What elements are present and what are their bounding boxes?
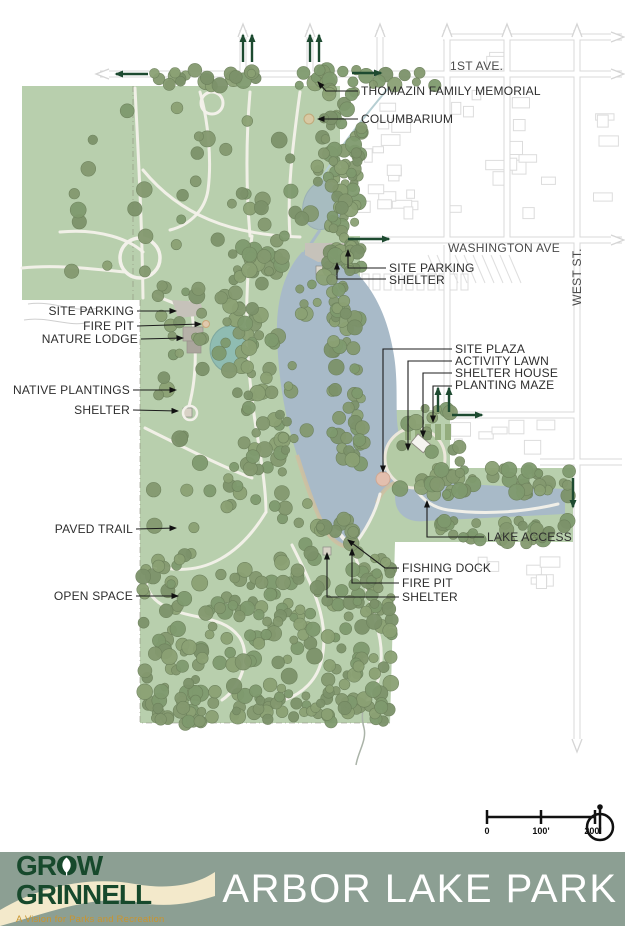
tree (232, 707, 240, 715)
tree (353, 661, 364, 672)
tree (194, 333, 207, 346)
tree (225, 647, 236, 658)
tree (453, 440, 466, 453)
building-footprint (450, 274, 457, 290)
tree (224, 474, 234, 484)
building-footprint (597, 115, 608, 127)
tree (345, 452, 360, 467)
tree (181, 484, 193, 496)
building-footprint (513, 120, 525, 131)
tree (148, 647, 162, 661)
tree (238, 437, 250, 449)
tree (138, 229, 153, 244)
tree (221, 501, 233, 513)
tree (373, 583, 383, 593)
tree (137, 684, 153, 700)
tree (227, 199, 236, 208)
tree (562, 480, 572, 490)
building-footprint (512, 98, 529, 108)
tree (352, 388, 363, 399)
tree (234, 611, 245, 622)
tree (535, 469, 543, 477)
logo-line2: GRINNELL (16, 879, 152, 910)
tree (256, 696, 265, 705)
tree (138, 664, 152, 678)
tree (253, 638, 265, 650)
tree (167, 580, 176, 589)
tree (326, 685, 334, 693)
tree (351, 148, 361, 158)
tree (344, 612, 353, 621)
tree (69, 188, 80, 199)
tree (174, 316, 186, 328)
tree (209, 685, 222, 698)
tree (194, 132, 203, 141)
tree (304, 546, 318, 560)
tree (182, 288, 190, 296)
tree (275, 692, 285, 702)
tree (241, 361, 254, 374)
tree (327, 427, 338, 438)
tree (170, 621, 186, 637)
tree (242, 401, 255, 414)
building-footprint (510, 141, 523, 154)
tree (414, 67, 425, 78)
tree (337, 512, 351, 526)
parking-hatch (500, 255, 512, 283)
parking-hatch (482, 255, 494, 283)
building-footprint (536, 575, 546, 589)
label-fire-pit-west: FIRE PIT (83, 319, 134, 333)
site-plaza-circle (376, 472, 390, 486)
tree (264, 588, 277, 601)
tree (242, 247, 257, 262)
building-footprint (373, 274, 380, 290)
tree (263, 617, 272, 626)
tree (385, 568, 395, 578)
tree (383, 624, 397, 638)
tree (229, 286, 243, 300)
parking-hatch (491, 255, 503, 283)
tree (278, 501, 292, 515)
tree (306, 622, 320, 636)
tree (158, 372, 170, 384)
tree (216, 569, 227, 580)
building-footprint (523, 208, 534, 219)
tree (254, 609, 265, 620)
tree (184, 678, 194, 688)
tree (346, 563, 360, 577)
tree (269, 501, 280, 512)
tree (188, 63, 202, 77)
tree (154, 684, 169, 699)
tree (307, 280, 316, 289)
fire-pit-west-feature (203, 321, 210, 328)
tree (455, 457, 465, 467)
tree (284, 184, 298, 198)
tree (242, 262, 258, 278)
tree (138, 617, 149, 628)
tree (300, 300, 309, 309)
tree (220, 143, 232, 155)
tree (199, 606, 214, 621)
tree (291, 698, 302, 709)
tree (182, 640, 197, 655)
building-footprint (542, 177, 556, 184)
tree (191, 147, 204, 160)
tree (246, 450, 260, 464)
building-footprint (449, 206, 461, 213)
tree (192, 575, 208, 591)
tree (295, 212, 309, 226)
tree (339, 679, 350, 690)
tree (223, 318, 232, 327)
tree (288, 361, 297, 370)
building-footprint (464, 106, 474, 117)
tree (156, 310, 168, 322)
tree (353, 434, 366, 447)
tree (294, 618, 307, 631)
building-footprint (527, 565, 542, 575)
building-footprint (599, 136, 618, 146)
tree (205, 630, 214, 639)
tree (146, 482, 161, 497)
tree (305, 608, 316, 619)
footer-banner: GROW GRINNELL A Vision for Parks and Rec… (0, 852, 625, 926)
tree (310, 581, 324, 595)
label-fishing-dock: FISHING DOCK (402, 561, 491, 575)
tree (382, 602, 396, 616)
tree (88, 135, 98, 145)
tree (208, 697, 219, 708)
tree (353, 597, 362, 606)
tree (332, 598, 345, 611)
tree (196, 652, 208, 664)
tree (200, 71, 214, 85)
tree (366, 614, 382, 630)
tree (212, 78, 228, 94)
tree (206, 710, 219, 723)
tree (521, 463, 537, 479)
tree (70, 202, 86, 218)
tree (365, 682, 381, 698)
building-footprint (381, 135, 400, 146)
tree (212, 346, 226, 360)
park-title: ARBOR LAKE PARK (215, 852, 625, 926)
scale-bar: 0 100' 200' (484, 810, 601, 836)
tree (284, 690, 293, 699)
street-label-first-ave: 1ST AVE. (450, 59, 503, 73)
tree (265, 267, 274, 276)
tree (103, 261, 113, 271)
tree (265, 333, 279, 347)
tree (147, 518, 162, 533)
tree (338, 295, 349, 306)
tree (327, 211, 338, 222)
tree (177, 189, 189, 201)
tree (137, 584, 149, 596)
tree (243, 462, 257, 476)
tree (237, 562, 252, 577)
tree (250, 685, 262, 697)
tree (182, 715, 195, 728)
tree (290, 434, 299, 443)
tree (452, 483, 468, 499)
tree (251, 495, 261, 505)
tree (369, 668, 381, 680)
tree (256, 417, 270, 431)
tree (281, 668, 297, 684)
tree (174, 554, 185, 565)
tree (276, 575, 291, 590)
tree (307, 648, 323, 664)
building-footprint (519, 155, 537, 163)
tree (423, 431, 432, 440)
tree (120, 104, 134, 118)
tree (247, 69, 255, 77)
tree (313, 177, 322, 186)
tree (345, 88, 358, 101)
tree (190, 176, 201, 187)
tree (321, 135, 330, 144)
tree (338, 66, 349, 77)
tree (337, 644, 346, 653)
tree (192, 455, 208, 471)
tree (350, 364, 360, 374)
street-arrow (572, 739, 582, 752)
tree (474, 534, 486, 546)
building-footprint (373, 147, 384, 153)
tree (238, 316, 253, 331)
label-open-space: OPEN SPACE (54, 589, 133, 603)
tree (278, 468, 287, 477)
tree (273, 617, 283, 627)
tree (197, 707, 206, 716)
tree (254, 201, 268, 215)
tree (290, 636, 298, 644)
tree (228, 250, 237, 259)
tree (244, 630, 255, 641)
parking-hatch (509, 255, 521, 283)
tree (136, 569, 151, 584)
tree (455, 468, 464, 477)
tree (177, 215, 186, 224)
tree (329, 157, 338, 166)
tree (168, 332, 177, 341)
building-footprint (404, 207, 413, 219)
tree (392, 481, 408, 497)
tree (271, 132, 287, 148)
tree (177, 591, 192, 606)
tree (448, 530, 458, 540)
tree (369, 653, 378, 662)
tree (321, 709, 333, 721)
columbarium-structure (304, 114, 314, 124)
tree (272, 656, 285, 669)
tree (295, 605, 305, 615)
tree (196, 362, 210, 376)
tree (275, 555, 290, 570)
tree (434, 462, 449, 477)
tree (348, 77, 358, 87)
tree (194, 716, 205, 727)
tree (246, 302, 259, 315)
tree (399, 69, 410, 80)
tree (372, 569, 382, 579)
tree (563, 465, 576, 478)
tree (319, 114, 329, 124)
tree (288, 712, 298, 722)
tree (197, 308, 207, 318)
tree (291, 564, 304, 577)
tree (136, 182, 152, 198)
tree (163, 78, 175, 90)
tree (314, 65, 325, 76)
tree (235, 654, 251, 670)
tree (472, 519, 481, 528)
tree (175, 349, 184, 358)
building-footprint (380, 103, 396, 111)
tree (294, 518, 304, 528)
tree (332, 283, 345, 296)
tree (385, 651, 398, 664)
street-label-washington-ave: WASHINGTON AVE (448, 241, 560, 255)
tree (177, 701, 190, 714)
street-label-west-st: WEST ST. (570, 248, 584, 306)
tree (157, 281, 167, 291)
tree (421, 404, 429, 412)
tree (255, 277, 268, 290)
tree (229, 462, 238, 471)
tree (253, 704, 264, 715)
tree (438, 514, 452, 528)
tree (340, 308, 351, 319)
tree (274, 486, 289, 501)
tree (275, 410, 284, 419)
tree (349, 579, 361, 591)
tree (229, 70, 242, 83)
tree (263, 678, 277, 692)
label-lake-access: LAKE ACCESS (487, 530, 572, 544)
tree (204, 485, 216, 497)
tree (341, 432, 353, 444)
grow-grinnell-logo: GROW GRINNELL A Vision for Parks and Rec… (0, 852, 215, 926)
building-footprint (492, 427, 507, 434)
building-footprint (387, 165, 401, 175)
building-footprint (479, 432, 493, 439)
tree (345, 265, 355, 275)
tree (340, 623, 352, 635)
tree (171, 102, 183, 114)
tree (335, 584, 348, 597)
building-footprint (378, 200, 392, 209)
tree (442, 490, 450, 498)
tree (350, 218, 358, 226)
tree (501, 462, 517, 478)
tree (128, 202, 142, 216)
label-shelter-west: SHELTER (74, 403, 130, 417)
tree (321, 630, 335, 644)
building-footprint (407, 190, 415, 198)
scale-tick-100: 100' (532, 826, 549, 836)
tree (232, 388, 242, 398)
tree (221, 363, 237, 379)
label-nature-lodge: NATURE LODGE (42, 332, 138, 346)
tree (232, 481, 243, 492)
tree (274, 249, 289, 264)
tree (284, 382, 293, 391)
tree (153, 703, 163, 713)
tree (340, 102, 355, 117)
tree (343, 402, 354, 413)
tree (355, 421, 369, 435)
label-native-plantings: NATIVE PLANTINGS (13, 383, 130, 397)
tree (190, 695, 200, 705)
label-fire-pit-south: FIRE PIT (402, 576, 453, 590)
building-footprint (537, 420, 555, 430)
label-paved-trail: PAVED TRAIL (55, 522, 133, 536)
tree (348, 526, 359, 537)
tree (255, 576, 268, 589)
tree (211, 233, 225, 247)
tree (263, 714, 274, 725)
tree (261, 629, 272, 640)
tree (485, 461, 499, 475)
tree (329, 224, 338, 233)
building-footprint (509, 420, 524, 434)
scale-tick-0: 0 (484, 826, 489, 836)
tree (214, 602, 225, 613)
tree (333, 411, 346, 424)
tree (265, 386, 278, 399)
tree (302, 499, 312, 509)
label-shelter-north: SHELTER (389, 273, 445, 287)
building-footprint (451, 423, 471, 437)
arbor-lake-park-plan: 1ST AVE. WASHINGTON AVE WEST ST. THOMAZI… (0, 0, 625, 845)
tree (152, 290, 164, 302)
label-site-parking-west: SITE PARKING (48, 304, 134, 318)
tree (425, 445, 439, 459)
tree (261, 372, 273, 384)
tree (213, 656, 227, 670)
tree (139, 266, 150, 277)
tree (159, 604, 173, 618)
building-footprint (486, 160, 505, 169)
tree (171, 239, 181, 249)
tree (153, 560, 165, 572)
building-footprint (540, 557, 560, 567)
tree (430, 477, 445, 492)
parking-hatch (473, 255, 485, 283)
tree (328, 359, 344, 375)
tree (192, 282, 205, 295)
tree (408, 414, 424, 430)
tree (347, 168, 357, 178)
tree (316, 523, 324, 531)
tree (241, 340, 257, 356)
tree (155, 714, 167, 726)
label-planting-maze: PLANTING MAZE (455, 378, 554, 392)
tree (295, 81, 303, 89)
tree (221, 338, 231, 348)
tree (318, 148, 329, 159)
building-footprint (594, 193, 613, 201)
tree (228, 601, 238, 611)
tree (324, 660, 336, 672)
tree (244, 391, 253, 400)
tree (335, 201, 348, 214)
tree (375, 701, 388, 714)
